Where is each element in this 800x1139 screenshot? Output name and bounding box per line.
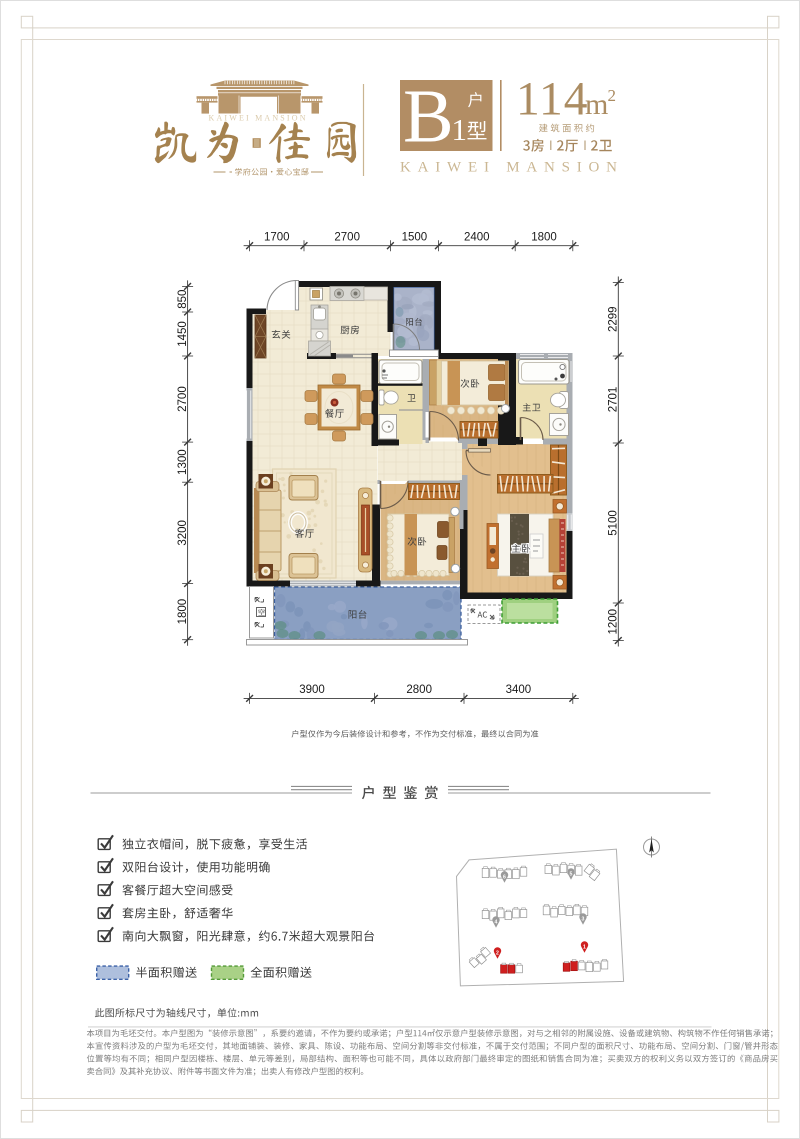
- svg-text:2: 2: [608, 86, 617, 105]
- svg-text:1450: 1450: [177, 321, 189, 347]
- svg-text:5100: 5100: [608, 510, 620, 536]
- svg-text:B: B: [403, 75, 454, 159]
- svg-text:6: 6: [503, 874, 506, 880]
- svg-text:m: m: [585, 88, 608, 121]
- svg-text:2800: 2800: [406, 684, 432, 696]
- svg-text:3900: 3900: [299, 684, 325, 696]
- svg-text:KAIWEI MANSION: KAIWEI MANSION: [400, 160, 617, 176]
- svg-text:1800: 1800: [531, 232, 557, 244]
- svg-text:2701: 2701: [608, 387, 620, 413]
- svg-text:1300: 1300: [177, 449, 189, 475]
- svg-text:1: 1: [452, 112, 468, 147]
- svg-text:850: 850: [177, 290, 189, 309]
- svg-text:KAIWEI MANSION: KAIWEI MANSION: [209, 114, 306, 123]
- svg-text:5: 5: [570, 871, 573, 877]
- svg-text:114: 114: [516, 74, 589, 126]
- svg-text:3400: 3400: [506, 684, 532, 696]
- svg-text:2700: 2700: [334, 232, 360, 244]
- svg-text:1500: 1500: [402, 232, 428, 244]
- svg-text:2299: 2299: [608, 306, 620, 332]
- svg-text:1200: 1200: [608, 609, 620, 635]
- svg-text:2: 2: [496, 950, 499, 956]
- svg-text:1700: 1700: [264, 232, 290, 244]
- svg-text:1: 1: [583, 944, 586, 950]
- svg-text:3200: 3200: [177, 520, 189, 546]
- svg-text:3: 3: [582, 916, 585, 922]
- svg-text:2700: 2700: [177, 386, 189, 412]
- svg-text:1800: 1800: [177, 599, 189, 625]
- svg-text:4: 4: [495, 919, 498, 925]
- svg-text:2400: 2400: [464, 232, 490, 244]
